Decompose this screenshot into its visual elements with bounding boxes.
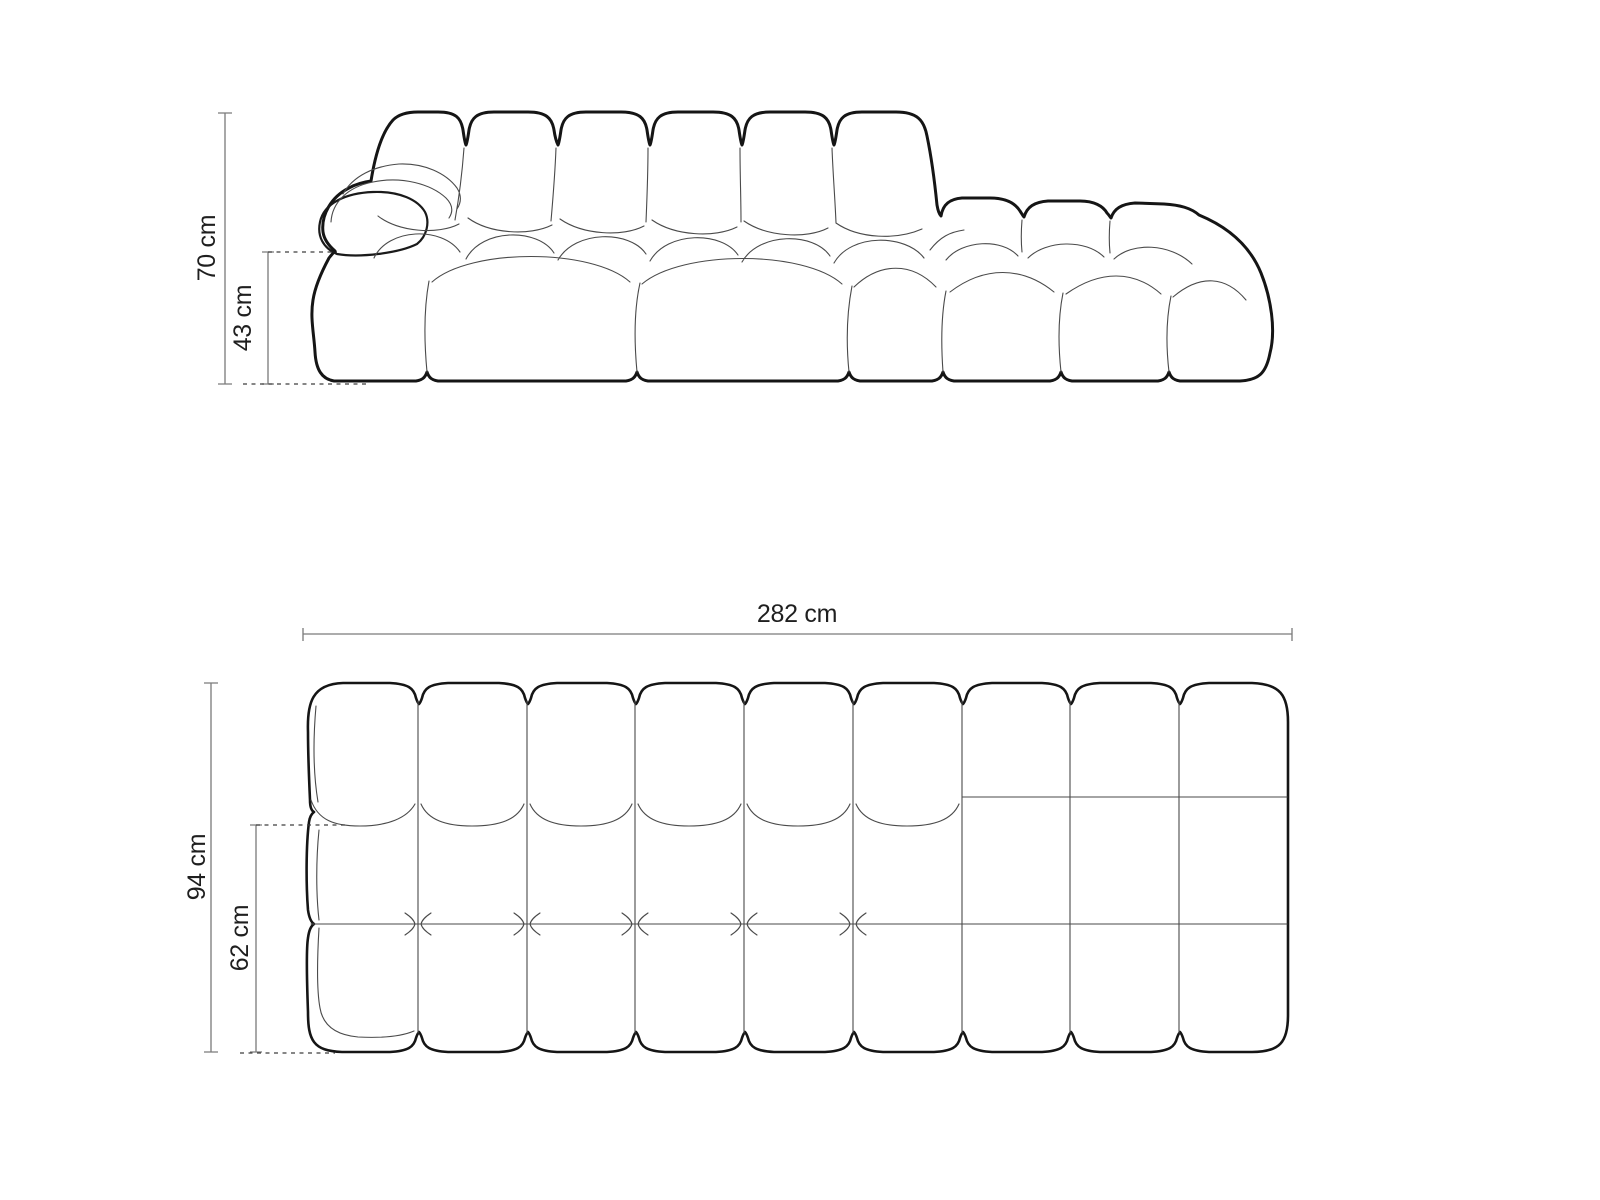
dimension-diagram-page: 70 cm 43 cm 282 cm 94 cm 62 cm bbox=[0, 0, 1600, 1200]
sofa-top-view bbox=[307, 683, 1288, 1052]
front-seams bbox=[331, 148, 1246, 372]
top-seams bbox=[311, 701, 1287, 1037]
top-outline bbox=[307, 683, 1288, 1052]
dim-total-height-label: 70 cm bbox=[193, 215, 221, 282]
dim-total-height: 70 cm bbox=[193, 113, 232, 384]
dim-total-width: 282 cm bbox=[303, 600, 1292, 641]
sofa-dimension-diagram: 70 cm 43 cm 282 cm 94 cm 62 cm bbox=[0, 0, 1600, 1200]
dim-seat-depth: 62 cm bbox=[226, 825, 347, 1053]
dim-total-depth: 94 cm bbox=[183, 683, 218, 1052]
dim-total-depth-label: 94 cm bbox=[183, 834, 211, 901]
dim-total-width-label: 282 cm bbox=[757, 600, 837, 628]
sofa-front-view bbox=[312, 112, 1273, 381]
front-armrest-pillow bbox=[319, 192, 427, 255]
dim-seat-depth-label: 62 cm bbox=[226, 905, 254, 972]
dim-seat-height: 43 cm bbox=[229, 252, 370, 384]
dim-seat-height-line bbox=[262, 252, 274, 384]
dim-seat-height-extension-lines bbox=[243, 252, 370, 384]
dim-seat-height-label: 43 cm bbox=[229, 285, 257, 352]
dim-total-width-line bbox=[303, 628, 1292, 641]
